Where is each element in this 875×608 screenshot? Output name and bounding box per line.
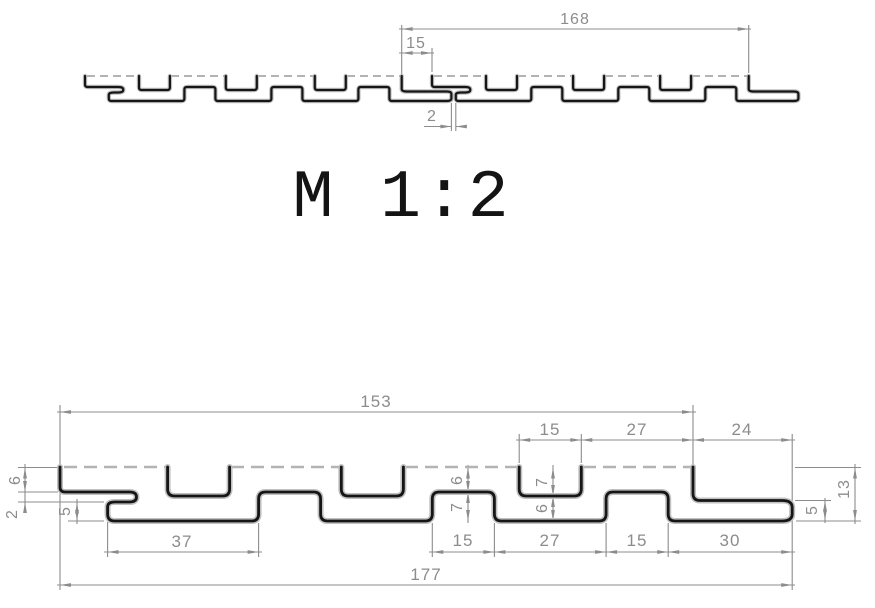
dim-label-end-run: 30	[720, 531, 741, 550]
dim-label-seam-gap: 2	[427, 108, 437, 125]
dim-label-tab-thickness: 5	[804, 505, 821, 515]
dim-label-web-between: 27	[540, 531, 561, 550]
dim-label-channel-a: 15	[453, 531, 474, 550]
dim-label-tongue-to-bottom: 5	[57, 506, 74, 516]
dim-label-overall-width: 177	[410, 565, 441, 584]
dim-label-channel-b: 15	[627, 531, 648, 550]
dim-label-face-to-tongue: 6	[7, 475, 24, 485]
dim-label-groove-depth: 7	[534, 477, 551, 487]
dim-label-overall-height: 13	[836, 479, 853, 499]
bottom-view-panel-section: 153 15 27 24 37 15 27 15 30 177 6 2 5 6 …	[4, 392, 861, 590]
technical-drawing-canvas: 168 15 2 M 1:2	[0, 0, 875, 608]
dim-label-seam-groove: 15	[406, 35, 426, 52]
dim-label-channel-height: 7	[449, 502, 466, 512]
dim-label-groove-web-below: 6	[534, 503, 551, 513]
technical-drawing-page: 168 15 2 M 1:2	[0, 0, 875, 608]
panel-top-grooves	[168, 467, 582, 496]
top-view-assembled-section: 168 15 2	[85, 11, 798, 131]
dim-label-slat-width: 27	[627, 420, 648, 439]
dim-label-end-tab-length: 24	[732, 420, 753, 439]
dim-label-groove-width: 15	[540, 420, 561, 439]
dim-label-panel-pitch: 168	[560, 11, 590, 28]
dim-label-channel-cover-depth: 6	[449, 475, 466, 485]
scale-label: M 1:2	[292, 160, 511, 237]
dim-label-hook-to-channel: 37	[172, 532, 193, 551]
dim-label-face-width: 153	[360, 392, 391, 411]
dim-label-tongue-thickness: 2	[4, 509, 21, 519]
